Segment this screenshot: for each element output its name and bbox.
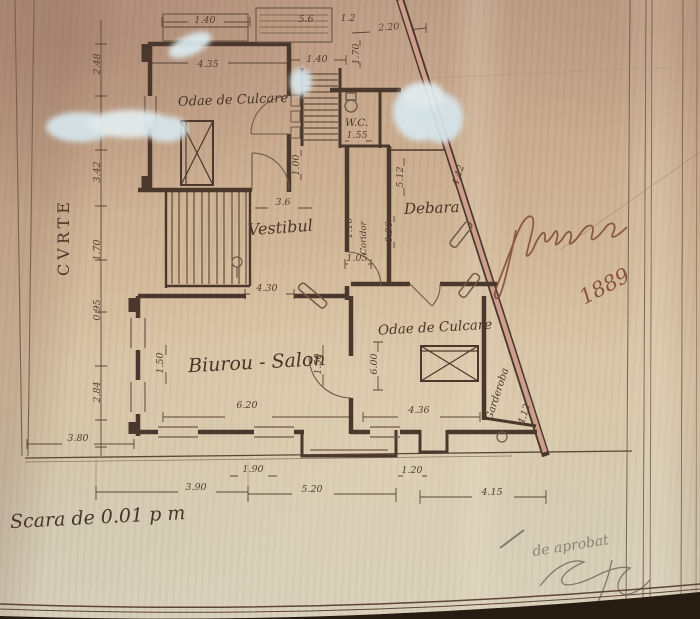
dimension-label: 2.20	[377, 21, 400, 34]
dimension-label: 1.05	[346, 253, 367, 264]
approval-note: de aprobat	[531, 532, 610, 560]
dimension-label: 6.20	[236, 400, 257, 411]
dimension-label: 1.20	[401, 465, 422, 476]
label-debara: Debara	[403, 198, 460, 218]
dimension-label: 1.40	[306, 54, 327, 65]
label-courtyard: CVRTE	[54, 198, 73, 276]
dimension-label: 5.12	[395, 166, 406, 187]
dimension-label: 1.55	[346, 130, 367, 141]
dimension-label: 0.96	[384, 221, 395, 242]
floor-plan-drawing: Odae de Culcare W.C. Vestibul Debara Oda…	[0, 0, 700, 619]
dimension-label: 1.00	[291, 154, 302, 175]
label-salon: Biurou - Salon	[187, 348, 327, 377]
dimension-label: 5.6	[298, 14, 313, 25]
dimension-label: 1.40	[194, 15, 215, 26]
label-wc: W.C.	[345, 117, 368, 129]
sink-fixtures	[291, 95, 300, 138]
label-room-right: Odae de Culcare	[378, 317, 493, 339]
dimension-label: 4.30	[255, 283, 277, 294]
scanned-floor-plan-sheet: Odae de Culcare W.C. Vestibul Debara Oda…	[0, 0, 700, 619]
dimension-label: 1.70	[92, 239, 103, 260]
dimension-label: 3.90	[185, 482, 206, 493]
stove-right-room	[421, 346, 478, 381]
dimension-label: 2.48	[92, 53, 103, 75]
dimension-label: 3.80	[67, 433, 88, 444]
signature-year: 1889	[575, 263, 633, 309]
dimension-label: 1.90	[242, 464, 263, 475]
label-garderoba: Garderoba	[484, 367, 511, 422]
dimension-label: 1.70	[351, 43, 362, 64]
sheet-bottom-edge	[0, 584, 700, 619]
wc-toilet-fixture	[345, 93, 357, 112]
dimension-label: 5.20	[301, 484, 322, 495]
dimension-label: 4.36	[407, 405, 429, 416]
label-coridor: Coridor	[359, 221, 369, 255]
dimension-label: 1.50	[313, 353, 324, 374]
dimension-label: 4.15	[480, 487, 502, 498]
dimension-label: 1.2	[340, 13, 355, 24]
dimension-label: 4.35	[196, 59, 218, 70]
dimension-label: 3.42	[92, 161, 103, 182]
diagonal-boundary-wall	[399, 0, 546, 456]
scale-note: Scara de 0.01 p m	[10, 502, 186, 533]
dimension-label: 0.95	[92, 299, 103, 320]
dimension-label: 2.84	[92, 381, 103, 403]
dimension-label: 1.50	[155, 352, 166, 373]
label-room-top-left: Odae de Culcare	[178, 91, 289, 110]
vestibul-fixture	[232, 257, 242, 278]
label-vestibul: Vestibul	[247, 216, 313, 239]
dimension-label: 6.00	[369, 353, 380, 374]
dimension-label: 1.10	[344, 217, 355, 238]
dimension-label: 3.6	[275, 197, 290, 208]
